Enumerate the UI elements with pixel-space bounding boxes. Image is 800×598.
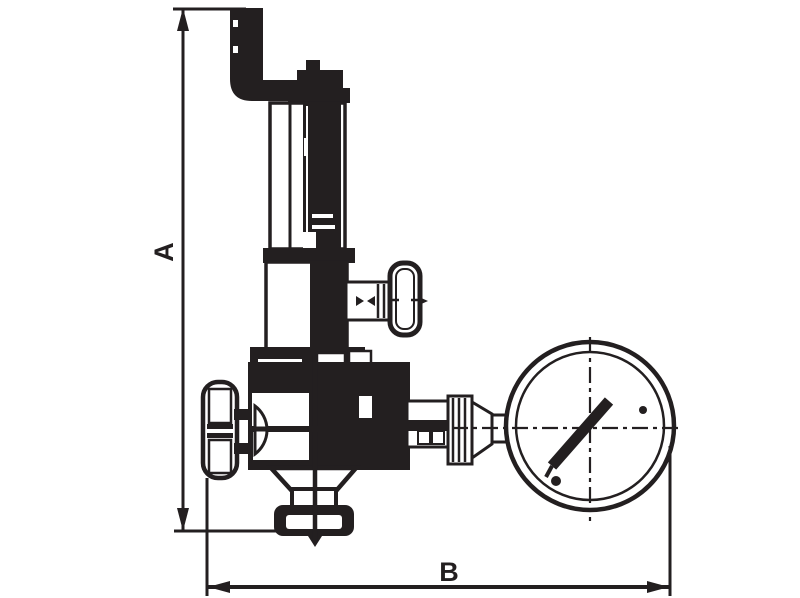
cap [297,70,343,90]
locknut-line [312,225,335,229]
valve-dimensional-drawing: A B [0,0,800,598]
needle-counterweight-dot [551,476,561,486]
screw-notch [304,138,308,156]
handwheel-panel [209,440,231,473]
fitting-band [407,420,448,431]
handwheel-panel [209,389,231,423]
drawing-canvas: A B [0,0,800,598]
fitting-detail [418,431,430,444]
body-window [359,396,372,418]
cap-flange [288,88,350,103]
handwheel-hub-band [207,433,233,438]
dimension-a-label: A [149,242,179,262]
pipe-highlight [233,20,238,27]
handwheel-hub-band [207,424,233,429]
handwheel-stem [234,409,250,420]
dimension-b-label: B [439,557,459,587]
fitting-detail [432,431,444,444]
handwheel-stem [234,443,250,454]
locknut-line [312,214,333,218]
dial-dot [639,406,647,414]
screw-channel [303,232,316,249]
pipe-highlight [233,46,238,53]
upper-body-shadow [310,262,347,356]
